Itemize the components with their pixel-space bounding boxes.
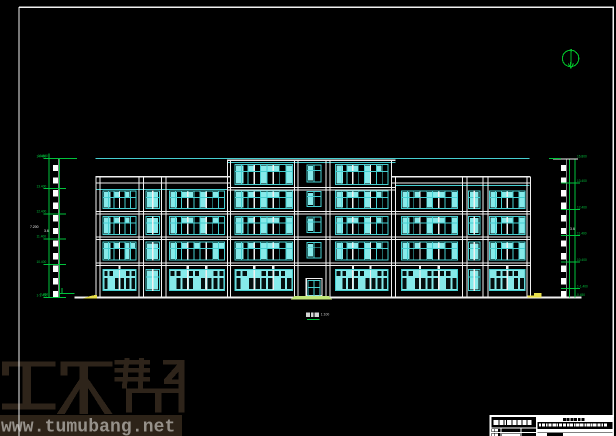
svg-text:www.tumubang.net: www.tumubang.net [1,417,175,436]
svg-text:-0.450: -0.450 [576,293,585,297]
svg-text:13.400: 13.400 [577,179,587,183]
svg-text:11.400: 11.400 [37,235,47,239]
svg-text:1-1.400: 1-1.400 [577,285,588,289]
svg-text:11.400: 11.400 [577,232,587,236]
svg-text:12.400: 12.400 [577,205,587,209]
svg-text:16.800: 16.800 [577,155,587,159]
svg-text:10.400: 10.400 [577,258,587,262]
svg-text:10.400: 10.400 [37,260,47,264]
svg-text:3.6: 3.6 [44,229,49,233]
svg-text:13.400: 13.400 [37,184,47,188]
svg-text:12.400: 12.400 [37,210,47,214]
svg-text:7.200: 7.200 [30,225,39,229]
svg-text:3.6: 3.6 [570,227,575,231]
svg-text:-0.450: -0.450 [39,293,48,297]
svg-text:1:100: 1:100 [321,312,330,316]
svg-text:16.800: 16.800 [38,154,48,158]
